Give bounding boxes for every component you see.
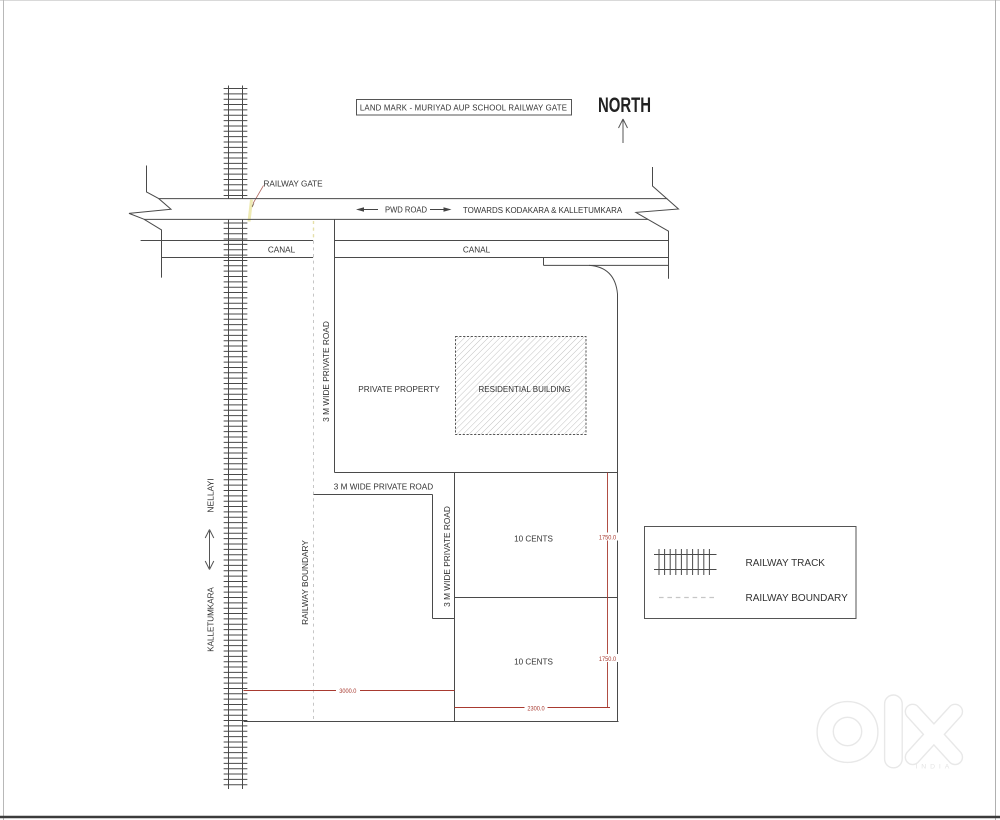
svg-text:RAILWAY BOUNDARY: RAILWAY BOUNDARY: [746, 593, 849, 604]
svg-text:3000.0: 3000.0: [339, 689, 357, 695]
svg-text:RAILWAY TRACK: RAILWAY TRACK: [746, 558, 826, 569]
svg-text:3 M WIDE PRIVATE ROAD: 3 M WIDE PRIVATE ROAD: [442, 506, 452, 607]
svg-text:10 CENTS: 10 CENTS: [514, 656, 553, 666]
svg-text:10 CENTS: 10 CENTS: [514, 533, 553, 543]
svg-text:KALLETUMKARA: KALLETUMKARA: [205, 587, 215, 652]
svg-text:RAILWAY BOUNDARY: RAILWAY BOUNDARY: [300, 540, 310, 625]
svg-text:PWD ROAD: PWD ROAD: [385, 205, 427, 215]
svg-text:3 M WIDE PRIVATE ROAD: 3 M WIDE PRIVATE ROAD: [321, 321, 331, 422]
svg-text:RESIDENTIAL BUILDING: RESIDENTIAL BUILDING: [479, 385, 571, 394]
svg-text:1750.0: 1750.0: [599, 535, 617, 541]
svg-text:NELLAYI: NELLAYI: [206, 478, 216, 512]
svg-text:CANAL: CANAL: [463, 246, 491, 255]
svg-text:INDIA: INDIA: [916, 764, 954, 771]
svg-text:PRIVATE PROPERTY: PRIVATE PROPERTY: [358, 384, 440, 394]
svg-text:TOWARDS KODAKARA & KALLETUMKAR: TOWARDS KODAKARA & KALLETUMKARA: [463, 206, 623, 215]
svg-text:CANAL: CANAL: [268, 245, 296, 254]
svg-text:3 M WIDE PRIVATE ROAD: 3 M WIDE PRIVATE ROAD: [334, 481, 433, 491]
svg-text:RAILWAY GATE: RAILWAY GATE: [264, 180, 324, 189]
svg-text:NORTH: NORTH: [598, 94, 651, 117]
svg-text:LAND MARK - MURIYAD AUP SCHOOL: LAND MARK - MURIYAD AUP SCHOOL RAILWAY G…: [360, 103, 568, 112]
svg-text:1750.0: 1750.0: [599, 657, 617, 663]
svg-text:2300.0: 2300.0: [527, 706, 545, 712]
